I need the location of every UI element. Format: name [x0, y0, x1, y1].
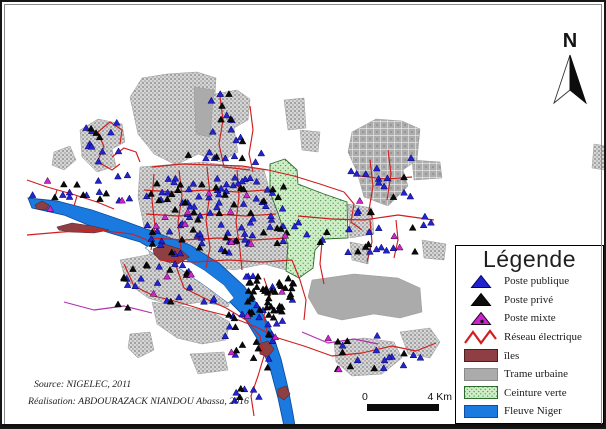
urban-patch — [300, 130, 320, 152]
poste-mixte-marker — [44, 177, 51, 183]
poste-prive-marker — [97, 196, 104, 202]
poste-publique-marker — [124, 172, 131, 178]
urban-patch — [190, 352, 228, 374]
network-line — [249, 106, 253, 172]
poste-prive-marker — [226, 311, 233, 317]
north-arrow-left-half — [554, 55, 570, 103]
poste-publique-marker — [29, 192, 36, 198]
urban-patch — [52, 146, 76, 170]
legend-item-label: Poste mixte — [500, 312, 556, 324]
network-line — [112, 148, 140, 162]
legend-item: Réseau électrique — [456, 328, 603, 347]
poste-prive-marker — [115, 301, 122, 307]
legend-item-label: Ceinture verte — [500, 387, 567, 399]
poste-prive-marker — [233, 347, 240, 353]
legend-swatch — [462, 329, 500, 345]
urban-patch — [308, 274, 422, 320]
legend-swatch — [462, 368, 500, 381]
poste-mixte-marker — [391, 233, 398, 239]
poste-publique-marker — [96, 189, 103, 195]
legend-swatch — [462, 311, 500, 326]
poste-publique-marker — [126, 195, 133, 201]
poste-mixte-marker — [325, 335, 332, 341]
legend-title: Légende — [456, 247, 603, 272]
poste-publique-marker — [250, 386, 257, 392]
poste-publique-marker — [279, 318, 286, 324]
urban-patch — [422, 240, 446, 260]
legend-swatch — [462, 349, 500, 362]
poste-publique-marker — [66, 189, 73, 195]
poste-prive-marker — [255, 273, 262, 279]
legend-item-label: îles — [500, 350, 519, 362]
network-line — [320, 242, 324, 284]
poste-publique-marker — [345, 249, 352, 255]
poste-publique-marker — [375, 225, 382, 231]
legend-item-label: Trame urbaine — [500, 368, 568, 380]
scale-bar-rect — [367, 404, 439, 411]
poste-publique-marker — [407, 193, 414, 199]
credit-source-line: Source: NIGELEC, 2011 — [34, 379, 131, 390]
map-canvas: N Légende Poste publiquePoste privéPoste… — [0, 0, 606, 429]
legend-item-label: Réseau électrique — [500, 331, 582, 343]
north-label: N — [563, 30, 577, 52]
poste-prive-marker — [253, 284, 260, 290]
poste-prive-marker — [74, 181, 81, 187]
poste-publique-marker — [115, 173, 122, 179]
urban-patch — [348, 119, 420, 206]
poste-prive-marker — [232, 324, 239, 330]
poste-prive-marker — [285, 275, 292, 281]
map-bottom-border — [2, 424, 604, 427]
legend-swatch — [462, 386, 500, 399]
poste-publique-marker — [256, 393, 263, 399]
legend-panel: Légende Poste publiquePoste privéPoste m… — [455, 245, 604, 424]
poste-prive-marker — [239, 155, 246, 161]
credit-realisation-line: Réalisation: ABDOURAZACK NIANDOU Abassa,… — [28, 396, 249, 407]
legend-item: Poste publique — [456, 272, 603, 291]
legend-swatch — [462, 274, 500, 289]
poste-prive-marker — [412, 248, 419, 254]
poste-publique-marker — [252, 159, 259, 165]
network-line — [64, 302, 152, 313]
poste-publique-marker — [374, 332, 381, 338]
legend-item: Fleuve Niger — [456, 402, 603, 421]
poste-prive-marker — [60, 181, 67, 187]
legend-swatch — [462, 405, 500, 418]
poste-publique-marker — [378, 244, 385, 250]
poste-prive-marker — [239, 342, 246, 348]
legend-items: Poste publiquePoste privéPoste mixteRése… — [456, 272, 603, 421]
poste-prive-marker — [250, 355, 257, 361]
poste-publique-marker — [348, 168, 355, 174]
urban-patch — [152, 302, 230, 344]
urban-patch — [284, 98, 306, 130]
poste-publique-marker — [422, 213, 429, 219]
legend-item-label: Poste publique — [500, 275, 569, 287]
north-arrow-right-half — [570, 55, 586, 103]
legend-item: îles — [456, 346, 603, 365]
scale-distance-label: 4 Km — [427, 391, 452, 403]
legend-item-label: Fleuve Niger — [500, 405, 562, 417]
network-line — [74, 196, 77, 206]
legend-item-label: Poste privé — [500, 294, 553, 306]
poste-publique-marker — [95, 177, 102, 183]
poste-prive-marker — [265, 295, 272, 301]
north-arrow: N — [554, 30, 586, 103]
legend-item: Ceinture verte — [456, 384, 603, 403]
urban-patch — [128, 332, 154, 358]
legend-swatch — [462, 292, 500, 307]
poste-prive-marker — [409, 224, 416, 230]
poste-prive-marker — [103, 190, 110, 196]
poste-publique-marker — [420, 222, 427, 228]
poste-prive-marker — [401, 350, 408, 356]
scale-zero-label: 0 — [362, 391, 368, 403]
legend-item: Poste mixte — [456, 309, 603, 328]
urban-patch — [412, 160, 442, 180]
legend-item: Trame urbaine — [456, 365, 603, 384]
poste-publique-marker — [258, 150, 265, 156]
poste-publique-marker — [400, 362, 407, 368]
urban-patch — [592, 144, 606, 170]
poste-prive-marker — [51, 194, 58, 200]
poste-mixte-marker — [356, 197, 363, 203]
legend-item: Poste privé — [456, 291, 603, 310]
scale-bar: 0 4 Km — [362, 391, 456, 411]
